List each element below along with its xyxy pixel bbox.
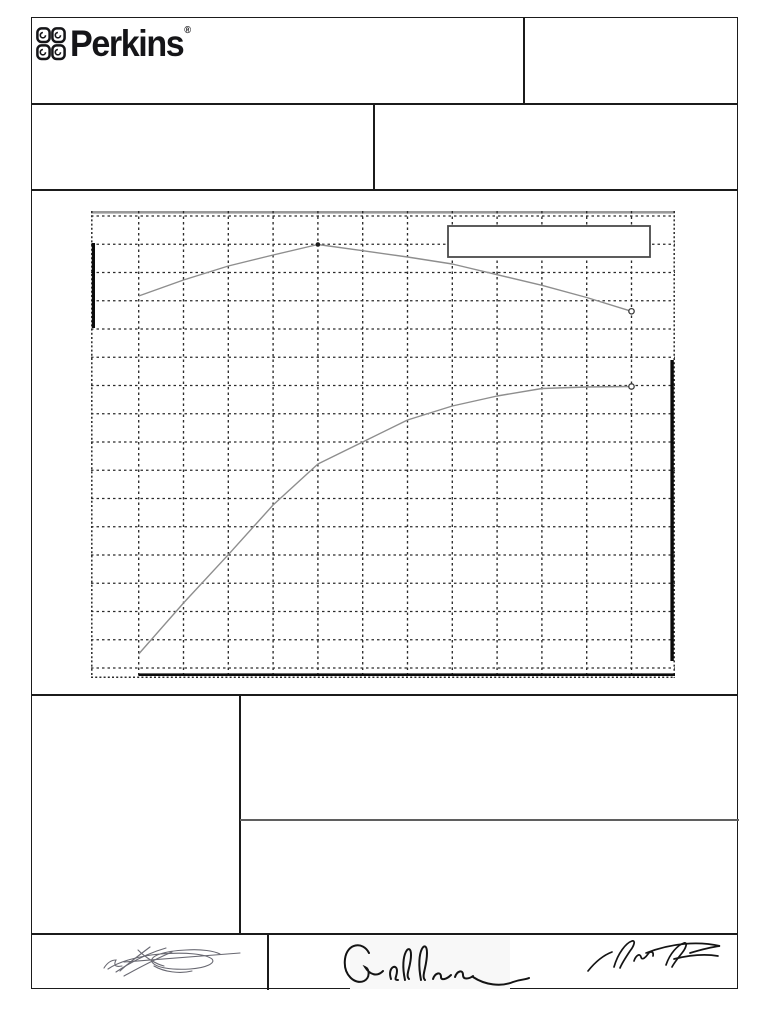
chart-region bbox=[32, 190, 739, 695]
lower-right-divider-horizontal bbox=[240, 819, 739, 821]
brand-logo: Perkins® bbox=[36, 27, 202, 62]
handwritten-signature-right bbox=[582, 931, 727, 981]
row2-left-cell bbox=[32, 104, 374, 190]
lower-right-upper-cell bbox=[240, 695, 739, 819]
document-page: Perkins® bbox=[0, 0, 768, 1024]
legend-box bbox=[448, 226, 650, 257]
header-top-right-cell bbox=[524, 18, 739, 104]
upper-curve-peak-marker bbox=[316, 242, 321, 247]
lower-curve-end-marker bbox=[629, 384, 634, 389]
lower-curve bbox=[139, 387, 632, 655]
row2-divider-vertical bbox=[373, 104, 375, 190]
left-axis-scale-bar bbox=[92, 243, 95, 328]
upper-curve-end-marker bbox=[629, 309, 634, 314]
header-logo-cell: Perkins® bbox=[32, 18, 524, 104]
performance-chart bbox=[91, 211, 675, 678]
signature-strip-divider bbox=[267, 934, 269, 990]
document-outer-border: Perkins® bbox=[31, 17, 738, 989]
brand-wordmark: Perkins® bbox=[70, 25, 191, 62]
perkins-logo-icon bbox=[36, 27, 67, 62]
lower-left-cell bbox=[32, 695, 240, 934]
row2-right-cell bbox=[374, 104, 739, 190]
handwritten-signature-middle bbox=[337, 933, 537, 993]
x-axis-baseline bbox=[139, 673, 675, 676]
lower-right-lower-cell bbox=[240, 821, 739, 934]
right-axis-scale-bar bbox=[670, 360, 673, 661]
registered-mark: ® bbox=[184, 26, 191, 36]
lower-section-divider-vertical bbox=[239, 695, 241, 934]
handwritten-signature-left bbox=[94, 938, 254, 986]
header-divider-vertical bbox=[523, 18, 525, 104]
